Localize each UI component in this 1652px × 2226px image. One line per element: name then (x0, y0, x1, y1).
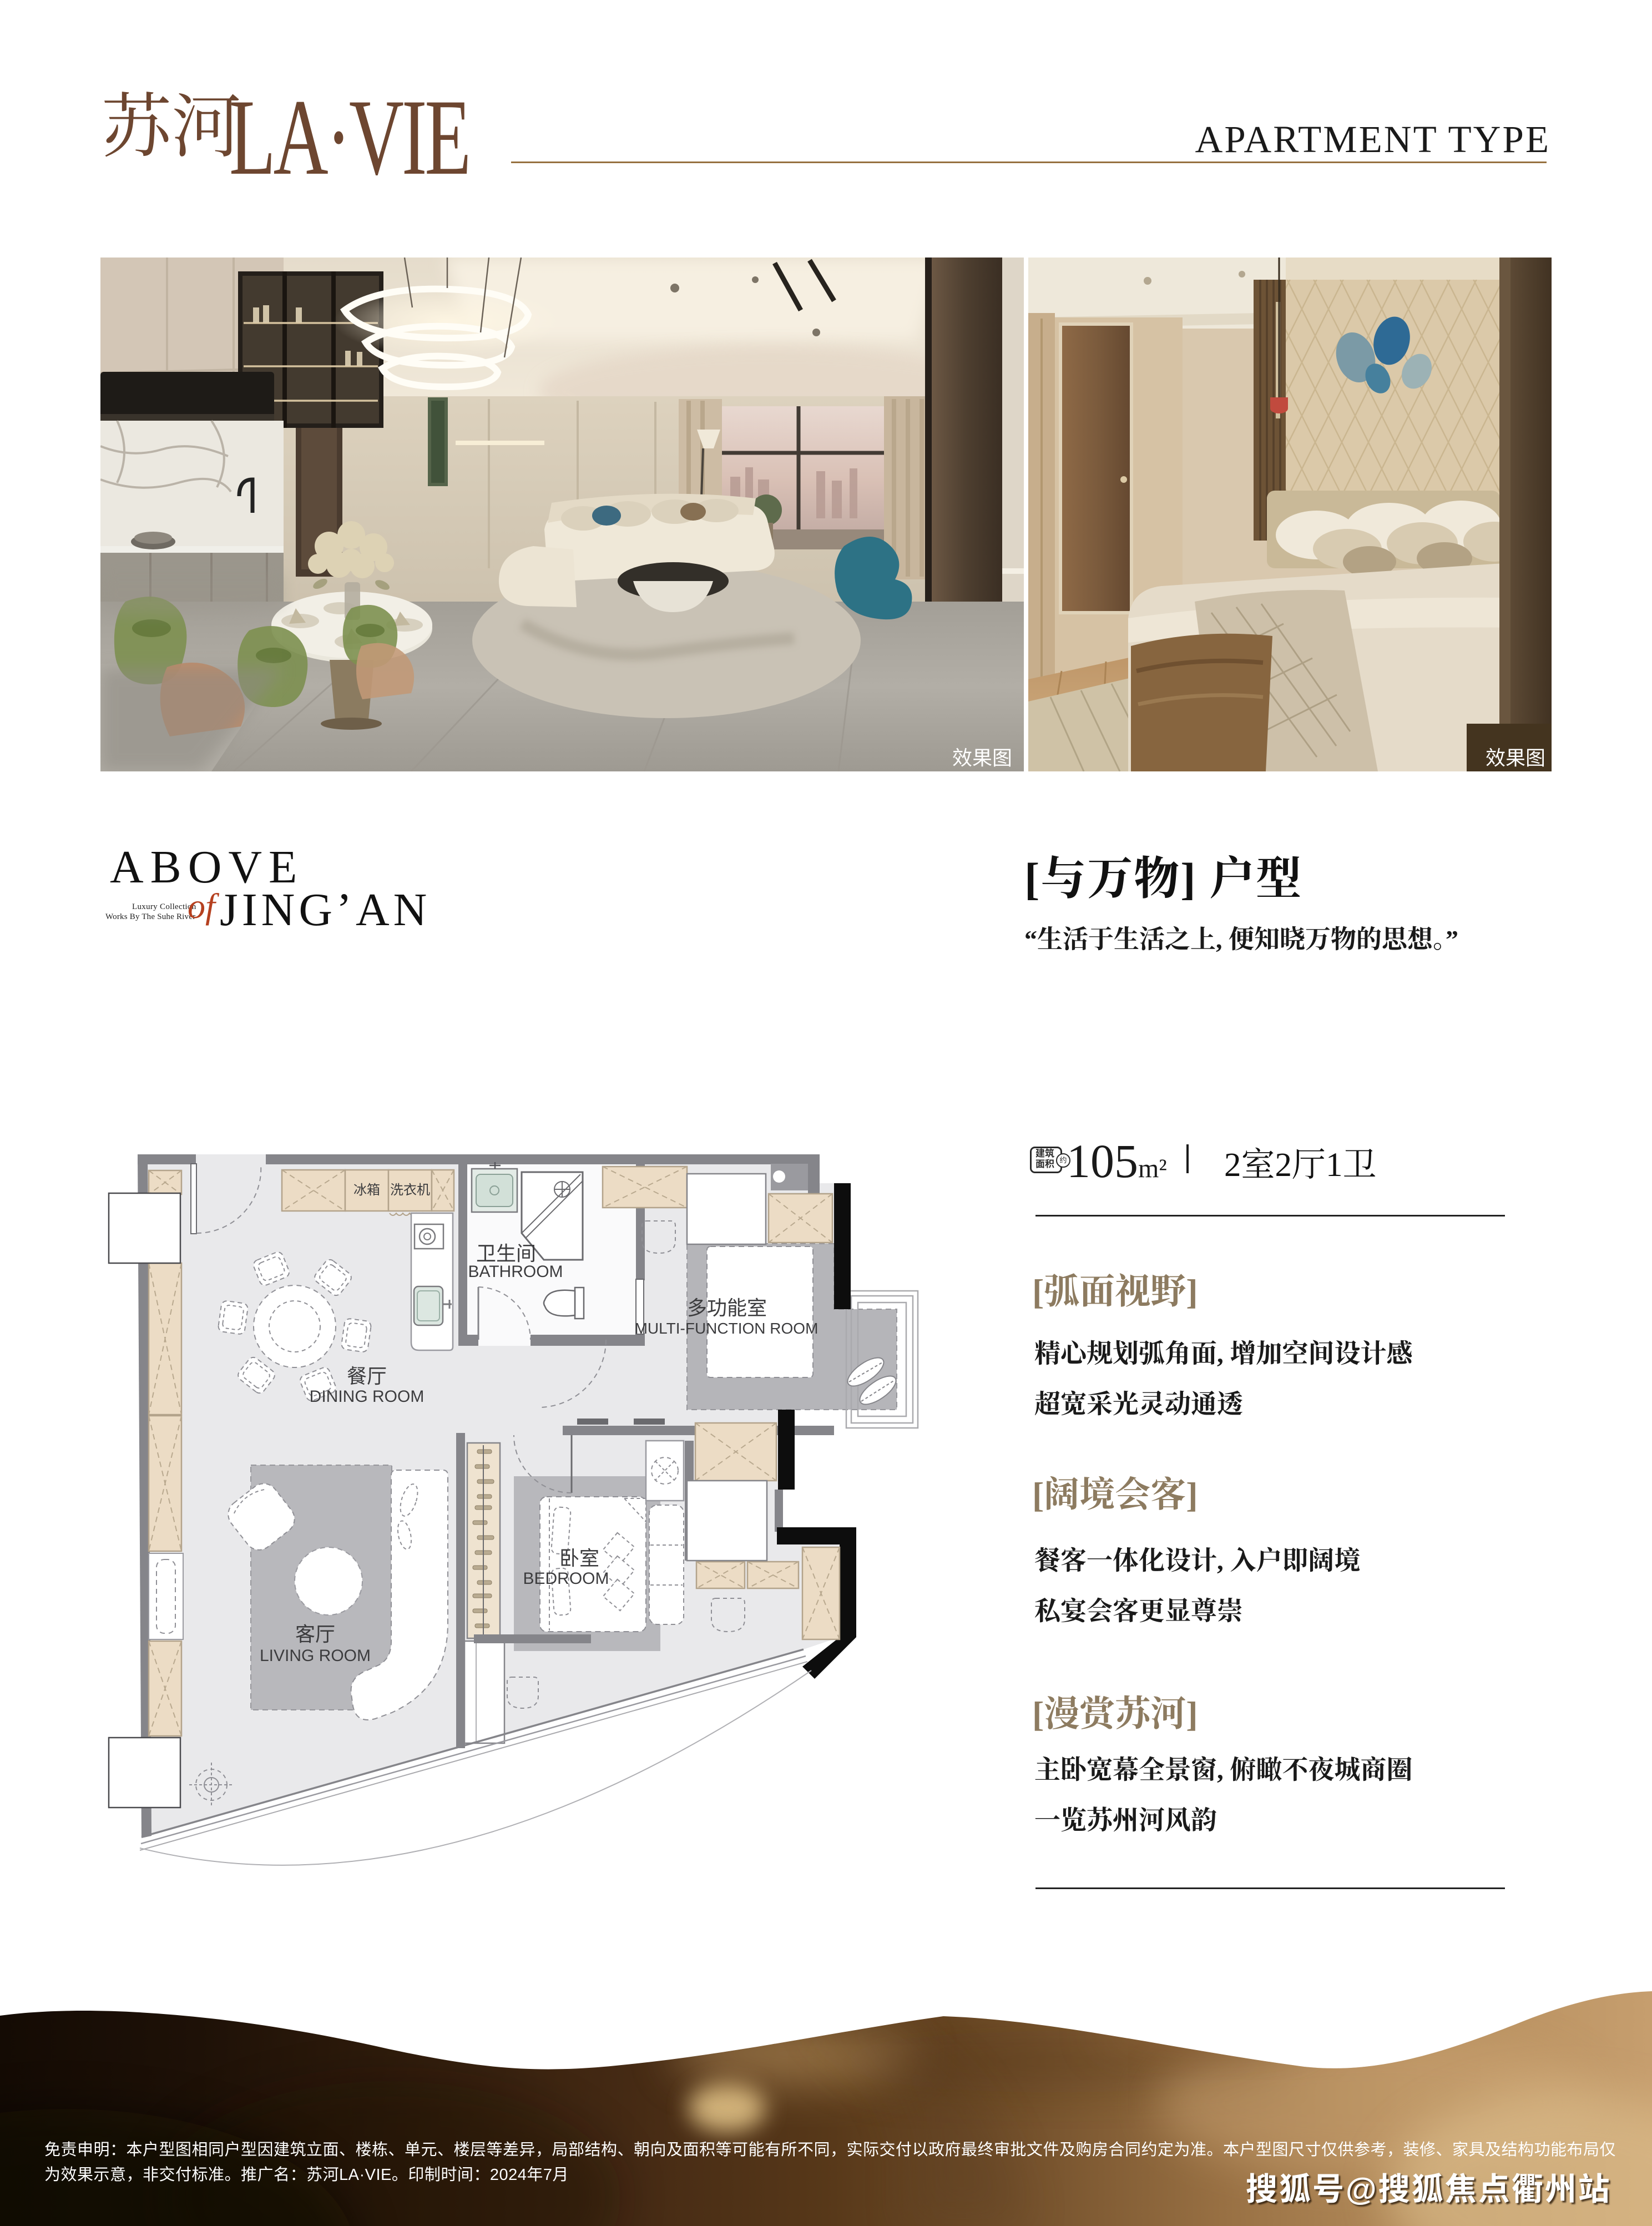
svg-text:LIVING ROOM: LIVING ROOM (260, 1647, 371, 1665)
svg-text:餐厅: 餐厅 (347, 1365, 387, 1387)
svg-text:卧室: 卧室 (559, 1547, 599, 1569)
svg-text:BATHROOM: BATHROOM (468, 1263, 563, 1281)
svg-text:BEDROOM: BEDROOM (523, 1569, 609, 1588)
svg-text:洗衣机: 洗衣机 (390, 1183, 430, 1198)
svg-text:卫生间: 卫生间 (476, 1242, 536, 1265)
svg-text:DINING ROOM: DINING ROOM (310, 1387, 425, 1406)
svg-text:客厅: 客厅 (295, 1623, 335, 1645)
svg-text:MULTI-FUNCTION ROOM: MULTI-FUNCTION ROOM (635, 1320, 819, 1337)
svg-text:多功能室: 多功能室 (687, 1296, 767, 1319)
svg-text:冰箱: 冰箱 (353, 1183, 380, 1198)
